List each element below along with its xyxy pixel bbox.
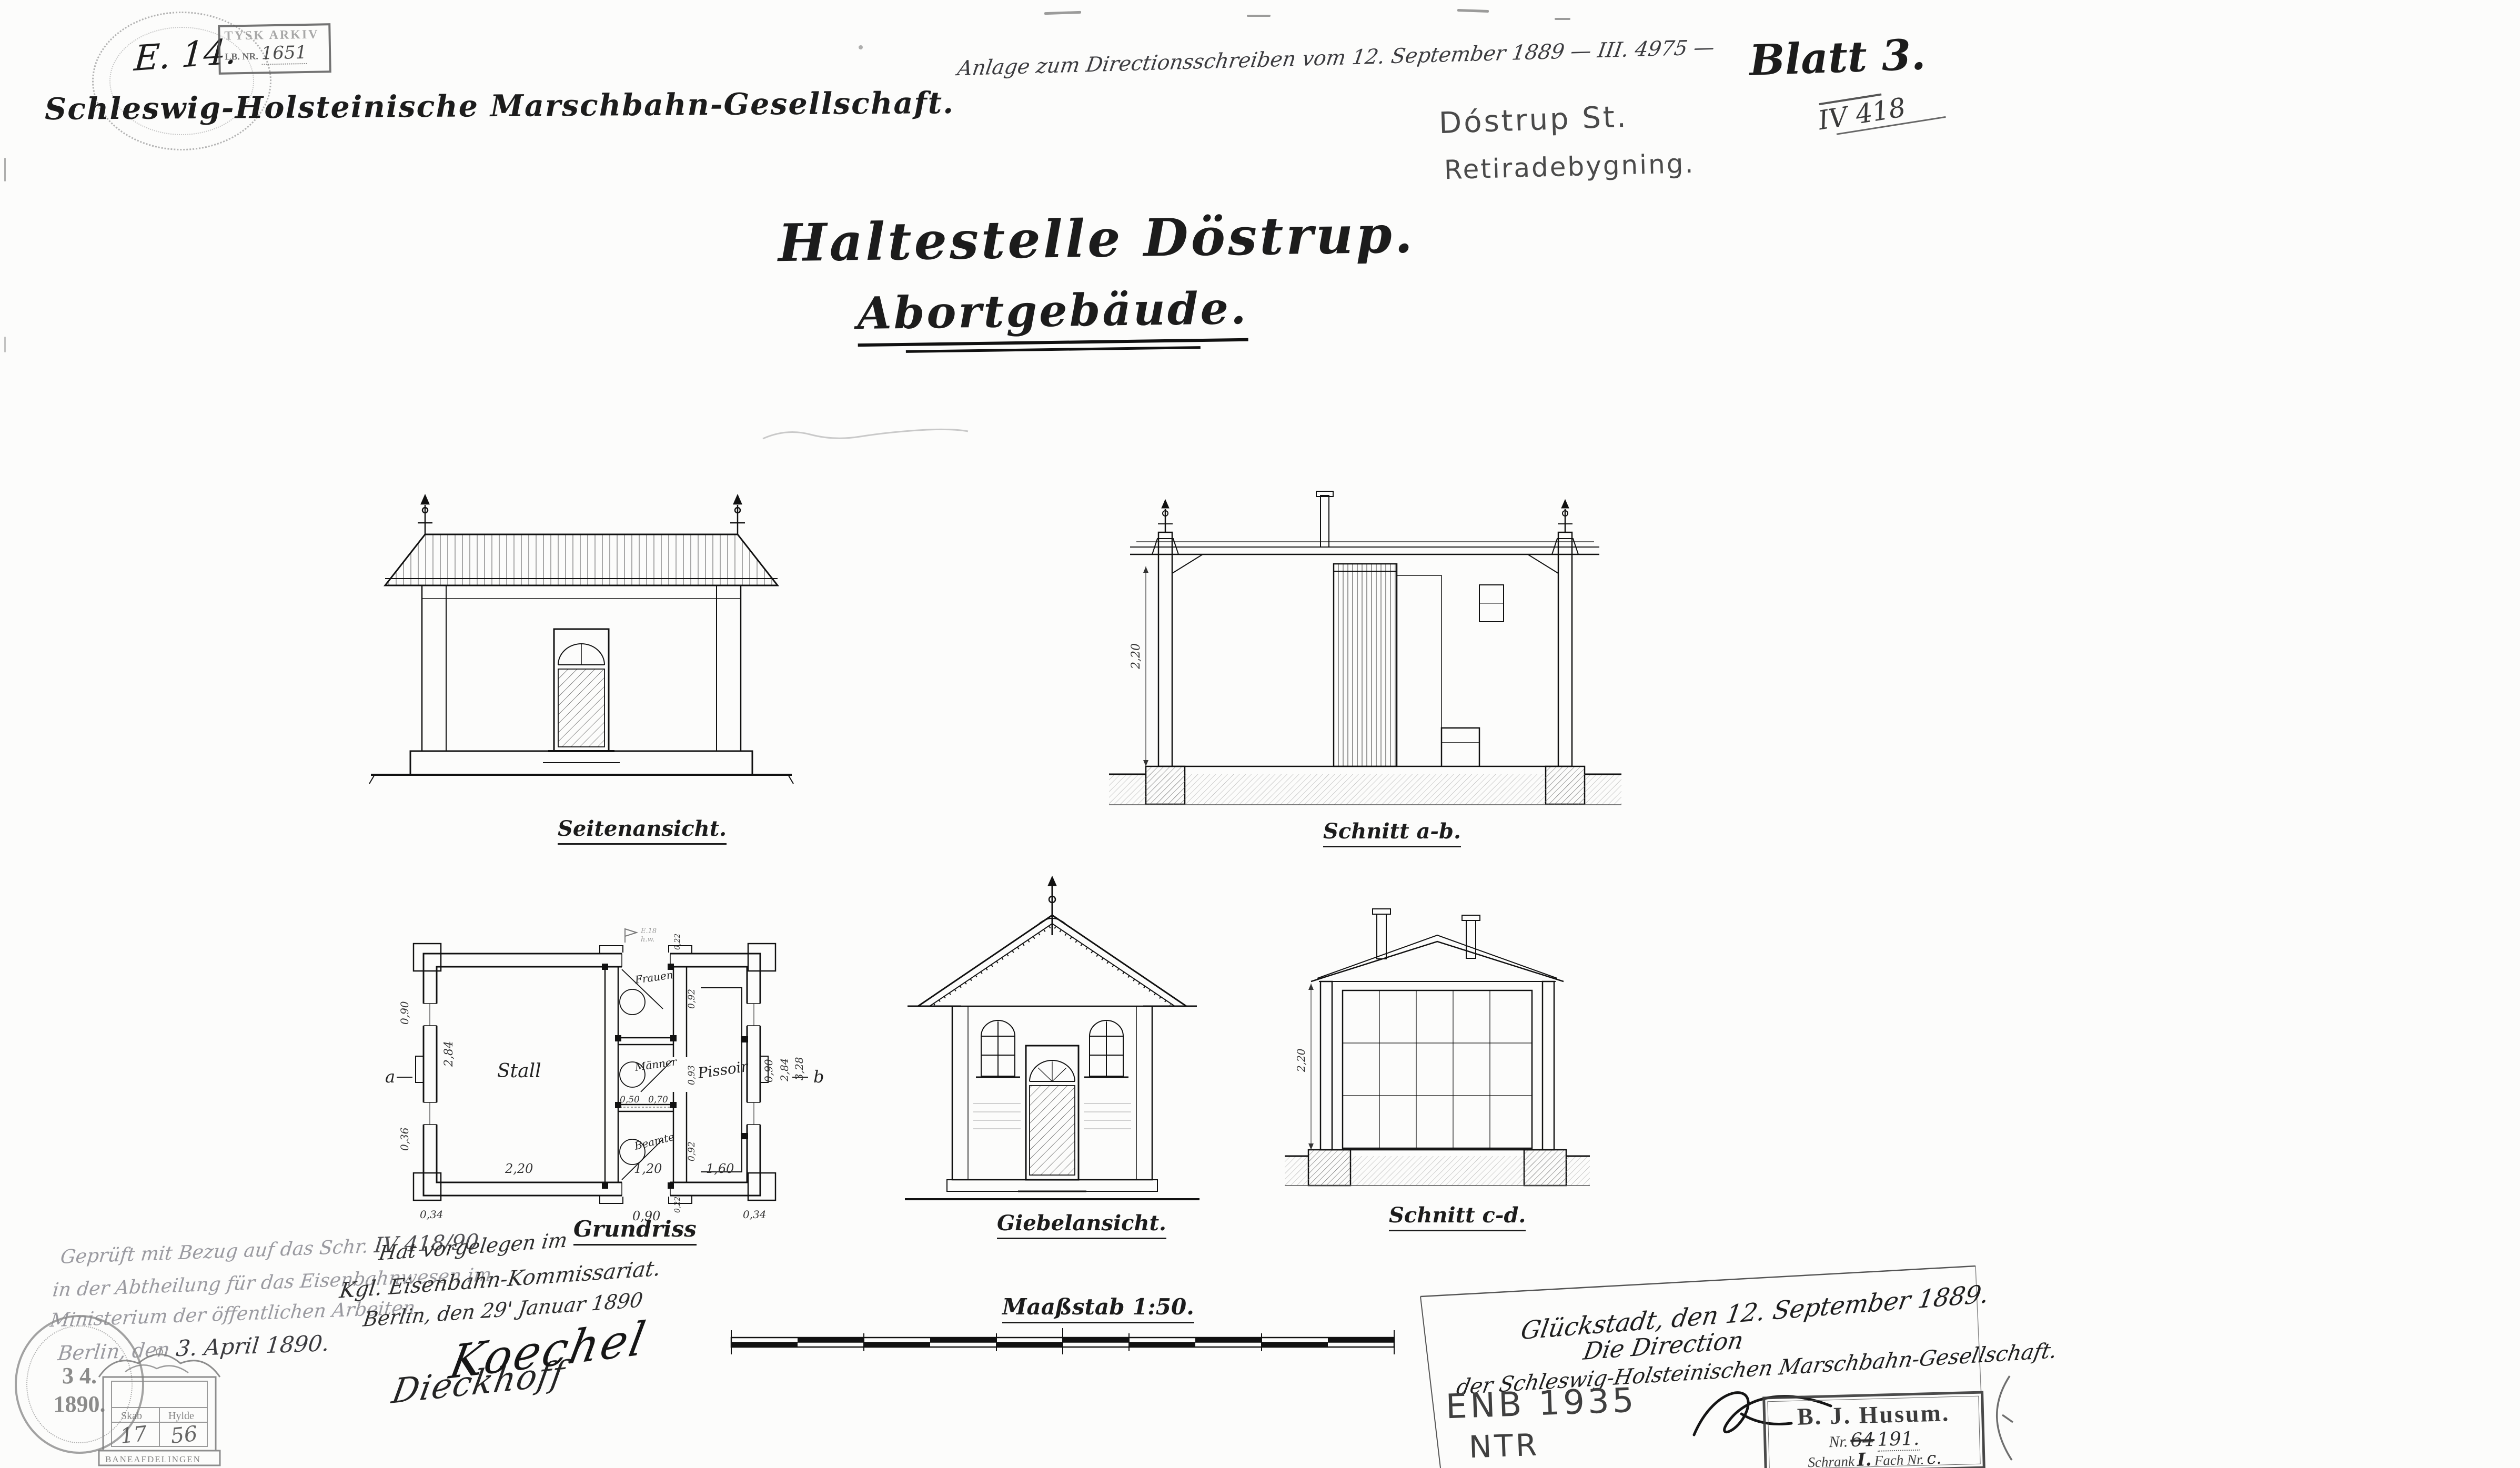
massstab-label: Maaßstab 1:50. (1002, 1294, 1194, 1323)
giebelansicht-drawing (897, 872, 1207, 1214)
dim-split-left: 0,50 (620, 1095, 640, 1105)
room-frauen: Frauen (633, 968, 674, 986)
scanned-drawing-sheet: E. 14. TYSK ARKIV LB. NR. 1651 Schleswig… (0, 0, 2520, 1468)
sheet-title: Haltestelle Döstrup. Abortgebäude. (778, 206, 1327, 355)
dim-wall-bottom: 0,22 (673, 1197, 682, 1213)
husum-nr-old: 64 (1850, 1429, 1875, 1451)
dim-corner-left: 0,34 (420, 1208, 443, 1221)
title-line1: Haltestelle Döstrup. (778, 206, 1326, 274)
schnitt-ab-label: Schnitt a-b. (1323, 819, 1461, 847)
cabinet-val1: 17 (119, 1422, 148, 1449)
schnitt-cd-height-dim: 2,20 (1295, 1048, 1307, 1072)
pencil-code-enb: ENB 1935 (1445, 1381, 1638, 1427)
section-letter-b: b (813, 1067, 824, 1087)
grundriss-flag-note2: h.w. (641, 936, 654, 944)
room-maenner: Männer (633, 1055, 678, 1074)
grundriss-drawing: E.18 h.w. a b Stall Frauen Männer Beamte… (379, 925, 826, 1240)
scan-speck (1247, 15, 1271, 17)
margin-tick (4, 158, 6, 181)
dim-split-right: 0,70 (648, 1095, 668, 1105)
scan-speck (1044, 11, 1081, 15)
dim-right-inner: 0,90 (762, 1059, 775, 1082)
seitenansicht-label: Seitenansicht. (558, 816, 727, 845)
dim-left-upper: 0,90 (398, 1001, 411, 1025)
room-beamte: Beamte (632, 1130, 676, 1152)
cabinet-archive-stamp: Skab Hylde 17 56 BANEAFDELINGEN (88, 1344, 230, 1468)
grundriss-flag-note1: E.18 (640, 927, 657, 935)
dim-cell-bot: 0,92 (687, 1141, 697, 1161)
dim-right-mid: 2,84 (778, 1058, 791, 1082)
dim-left-height: 2,84 (442, 1041, 456, 1067)
cabinet-footer: BANEAFDELINGEN (105, 1454, 201, 1464)
pencil-building-note: Retiradebygning. (1444, 148, 1695, 185)
lb-nr-label: LB. NR. (225, 51, 258, 63)
cabinet-val2: 56 (169, 1422, 198, 1449)
scale-bar (721, 1323, 1405, 1365)
schnitt-ab-drawing: 2,20 (1100, 480, 1631, 824)
tysk-arkiv-stamp: TYSK ARKIV LB. NR. 1651 (218, 23, 331, 75)
schnitt-cd-drawing: 2,20 (1279, 893, 1595, 1214)
top-annotation: Anlage zum Directionsschreiben vom 12. S… (956, 36, 1716, 80)
title-line2: Abortgebäude. (857, 282, 1248, 347)
schnitt-ab-height-dim: 2,20 (1130, 643, 1143, 670)
file-number-block: IV 418 (1816, 84, 1946, 138)
section-letter-a: a (385, 1067, 395, 1087)
husum-title: B. J. Husum. (1765, 1398, 1981, 1432)
pencil-code-ntr: NTR (1468, 1427, 1540, 1465)
faint-pencil-squiggle (758, 417, 979, 448)
dim-wall-top: 0,22 (673, 934, 682, 950)
dim-mid-width: 1,20 (634, 1161, 662, 1176)
scan-speck (859, 45, 863, 49)
husum-fach-value: c. (1927, 1448, 1942, 1468)
pencil-station-note: Dóstrup St. (1438, 100, 1629, 141)
dim-right-outer: 3,28 (793, 1057, 805, 1080)
husum-schrank-value: I. (1857, 1449, 1872, 1468)
dim-cell-mid: 0,93 (687, 1065, 697, 1085)
cabinet-col1: Skab (121, 1410, 142, 1422)
husum-fach-label: Fach Nr. (1874, 1452, 1924, 1468)
room-stall: Stall (497, 1060, 541, 1082)
pencil-bracket-mark (1982, 1372, 2019, 1464)
husum-nr-label: Nr. (1829, 1433, 1848, 1451)
cabinet-col2: Hylde (168, 1410, 194, 1422)
giebelansicht-label: Giebelansicht. (997, 1211, 1166, 1239)
dim-pissoir-width: 1,60 (706, 1161, 734, 1176)
scan-speck (1555, 18, 1570, 20)
berlin-line1-text: Geprüft mit Bezug auf das Schr. (59, 1236, 369, 1268)
schnitt-cd-label: Schnitt c-d. (1389, 1203, 1526, 1231)
tysk-arkiv-text: TYSK ARKIV (224, 27, 324, 43)
dim-stall-width: 2,20 (505, 1161, 533, 1176)
dim-cell-top: 0,92 (687, 989, 697, 1009)
dim-left-lower: 0,36 (398, 1127, 411, 1151)
seitenansicht-drawing (363, 472, 800, 819)
company-header: Schleswig-Holsteinische Marschbahn-Gesel… (45, 85, 954, 127)
husum-schrank-label: Schrank (1808, 1453, 1854, 1468)
lb-nr-number: 1651 (261, 42, 307, 65)
sheet-number: Blatt 3. (1748, 29, 1926, 85)
scan-speck (1457, 9, 1489, 13)
margin-tick (4, 337, 6, 352)
dim-corner-right: 0,34 (743, 1208, 767, 1221)
grundriss-label: Grundriss (573, 1216, 697, 1246)
husum-stamp: B. J. Husum. Nr. 64 191. Schrank I. Fach… (1762, 1391, 1985, 1468)
